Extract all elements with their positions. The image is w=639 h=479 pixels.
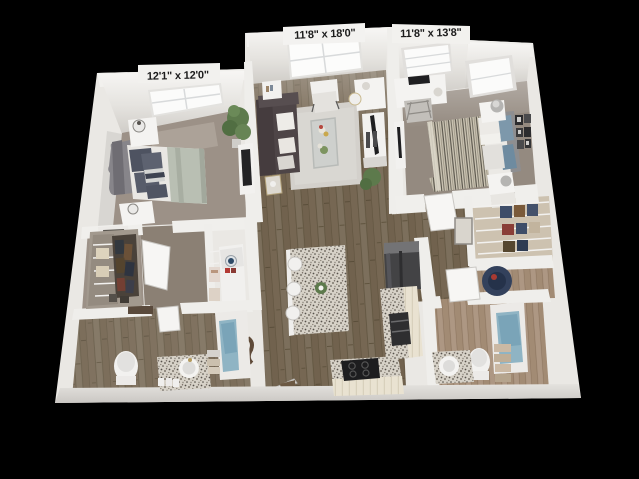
svg-text:12'1" x 12'0": 12'1" x 12'0" bbox=[147, 69, 209, 83]
svg-text:11'8" x 13'8": 11'8" x 13'8" bbox=[400, 27, 462, 41]
